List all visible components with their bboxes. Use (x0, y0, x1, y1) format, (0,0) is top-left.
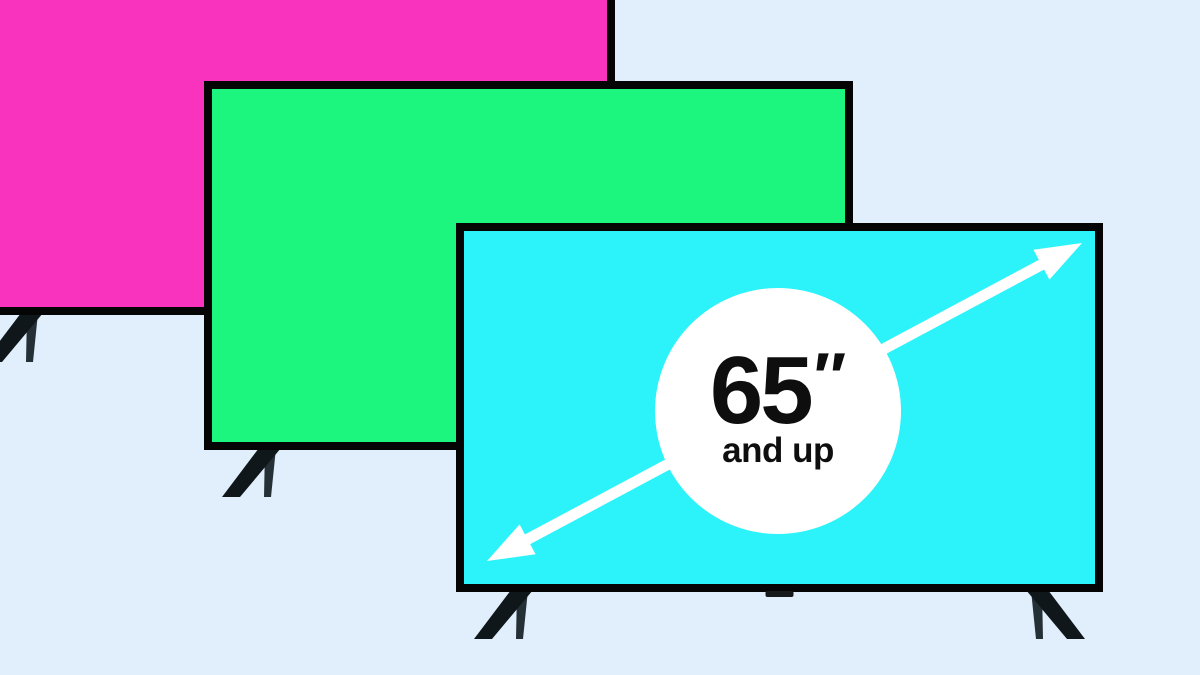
tv-size-illustration: 65 ″ and up (0, 0, 1200, 675)
size-qualifier: and up (722, 433, 834, 468)
size-value: 65 ″ (710, 343, 846, 439)
size-number: 65 (710, 343, 811, 439)
tv-stack-graphic (0, 0, 1200, 675)
tv-sensor-bump (766, 591, 794, 597)
size-badge: 65 ″ and up (655, 288, 901, 534)
inch-mark: ″ (814, 343, 847, 411)
